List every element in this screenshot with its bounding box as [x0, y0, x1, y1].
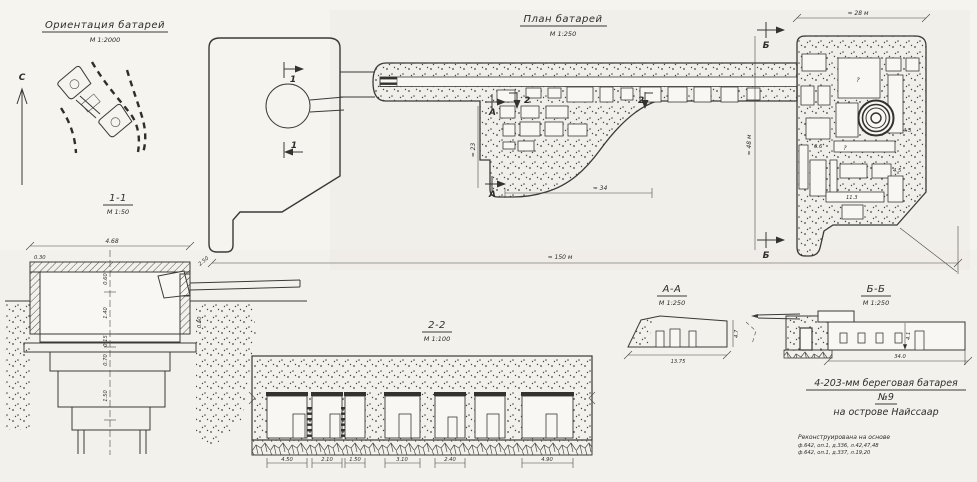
svg-text:Б: Б: [763, 251, 770, 261]
dim-b-b-width: 34.0: [894, 354, 906, 360]
corridor-strip: [380, 77, 797, 87]
dim-room-2: 2.10: [321, 457, 333, 463]
casemate-rooms: [267, 396, 573, 438]
profile-openings: [656, 329, 696, 347]
room-query-2: ?: [843, 144, 847, 152]
left-block-door: [800, 328, 812, 350]
section-marker-1-top: 1: [284, 62, 303, 85]
section-b-b-title: Б-Б: [867, 284, 886, 295]
chain-5: 1.50: [103, 390, 109, 402]
foundation-rubble: [252, 440, 592, 455]
left-block-rubble: [784, 350, 832, 358]
north-label: С: [19, 73, 26, 83]
dim-room-4: 3.10: [396, 457, 408, 463]
small-dim-4: 4.3: [903, 128, 911, 134]
plan-total-length: ≈ 150 м: [548, 254, 573, 261]
svg-text:1: 1: [290, 75, 296, 85]
right-block-width-dim: ≈ 28 м: [847, 10, 868, 17]
orientation-sketch: Ориентация батарей М 1:2000 С: [17, 19, 168, 185]
rooms-width-dim: ≈ 34: [593, 185, 608, 192]
plan-title: План батарей: [523, 13, 602, 25]
gun-emplacement-circle: [266, 84, 310, 128]
room-query-1: ?: [856, 76, 860, 84]
svg-text:2: 2: [524, 96, 530, 106]
dim-room-3: 1.50: [349, 457, 361, 463]
gun-well: [859, 101, 894, 136]
right-block-height-dim: ≈ 48 м: [746, 134, 753, 155]
orientation-scale: М 1:2000: [90, 36, 121, 44]
dim-width: 4.68: [105, 238, 119, 245]
section-a-a-scale: М 1:250: [659, 299, 685, 307]
drawing-canvas: Ориентация батарей М 1:2000 С План батар…: [0, 0, 977, 482]
dim-b-b-height: 4.1: [906, 332, 912, 340]
ground-fill-left: [5, 302, 30, 430]
chain-2: 1.40: [103, 307, 109, 319]
battery-title-line1: 4-203-мм береговая батарея: [814, 378, 958, 389]
notes-ref1: ф.642, оп.1, д.336, л.42,47,48: [798, 443, 879, 449]
dim-wall: 0.30: [34, 255, 46, 261]
dim-room-6: 4.90: [541, 457, 553, 463]
section-1-1-scale: М 1:50: [107, 208, 129, 216]
blueprint-sheet: Ориентация батарей М 1:2000 С План батар…: [0, 0, 977, 482]
chain-1: 0.60: [103, 273, 109, 285]
dim-wall-r: 0.50: [197, 316, 203, 328]
north-arrow-icon: С: [17, 73, 27, 185]
svg-text:А: А: [488, 190, 496, 200]
plan-scale: М 1:250: [550, 30, 576, 38]
svg-text:А: А: [488, 108, 496, 118]
section-b-b-scale: М 1:250: [863, 299, 889, 307]
dim-a-a-width: 13.75: [671, 359, 687, 365]
notes-ref2: ф.642, оп.1, д.337, л.19,20: [798, 450, 871, 456]
battery-title-line3: на острове Найссаар: [833, 407, 938, 418]
dim-room-5: 2.40: [444, 457, 456, 463]
notes-header: Реконструирована на основе: [798, 434, 890, 441]
orientation-title: Ориентация батарей: [45, 19, 165, 31]
section-a-a-title: А-А: [662, 284, 682, 295]
chain-4: 0.70: [103, 354, 109, 366]
roof-box: [818, 311, 854, 322]
section-2-2-scale: М 1:100: [424, 335, 450, 343]
dim-a-a-height: 4.7: [734, 329, 740, 338]
small-dim-1: 6.6: [814, 144, 823, 150]
dim-room-1: 4.50: [281, 457, 293, 463]
pier-hatch-2: [341, 407, 345, 438]
small-dim-2: 4.5: [893, 168, 902, 174]
rooms-height-dim: ≈ 23: [470, 143, 477, 158]
stairs-hatch: [380, 77, 397, 87]
svg-text:1: 1: [291, 141, 297, 151]
section-1-1-title: 1-1: [109, 193, 127, 204]
chain-3: 0.15: [103, 335, 109, 347]
site-roads-dashed: [61, 62, 145, 153]
svg-text:2: 2: [638, 96, 644, 106]
section-marker-1-bottom: 1: [284, 141, 303, 158]
pier-hatch-1: [307, 407, 312, 438]
small-dim-3: 11.3: [846, 195, 858, 201]
svg-text:Б: Б: [763, 41, 770, 51]
battery-title-line2: №9: [877, 392, 894, 403]
room-lintels: [266, 392, 574, 396]
section-2-2-title: 2-2: [428, 320, 446, 331]
